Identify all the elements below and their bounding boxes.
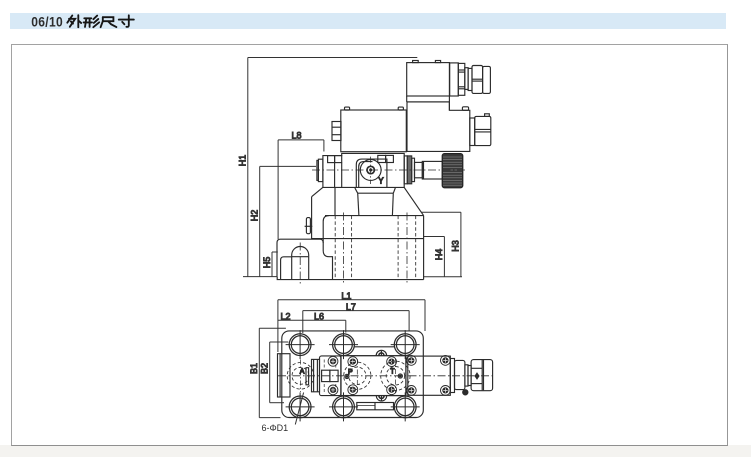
svg-text:H3: H3	[451, 240, 461, 252]
svg-text:6-ΦD1: 6-ΦD1	[262, 423, 289, 433]
svg-text:H1: H1	[238, 155, 248, 167]
svg-text:L2: L2	[280, 311, 290, 321]
svg-text:L6: L6	[314, 311, 324, 321]
svg-text:06/10: 06/10	[31, 13, 63, 29]
svg-text:T: T	[390, 369, 395, 376]
svg-text:B2: B2	[259, 363, 269, 374]
svg-text:L8: L8	[291, 130, 301, 140]
svg-text:H4: H4	[434, 249, 444, 261]
svg-text:Y: Y	[378, 177, 384, 186]
svg-text:L1: L1	[341, 291, 351, 301]
svg-text:L7: L7	[346, 302, 356, 312]
svg-text:H2: H2	[250, 210, 260, 222]
svg-text:H5: H5	[262, 257, 272, 269]
svg-text:B1: B1	[249, 363, 259, 374]
svg-text:P: P	[348, 369, 353, 376]
